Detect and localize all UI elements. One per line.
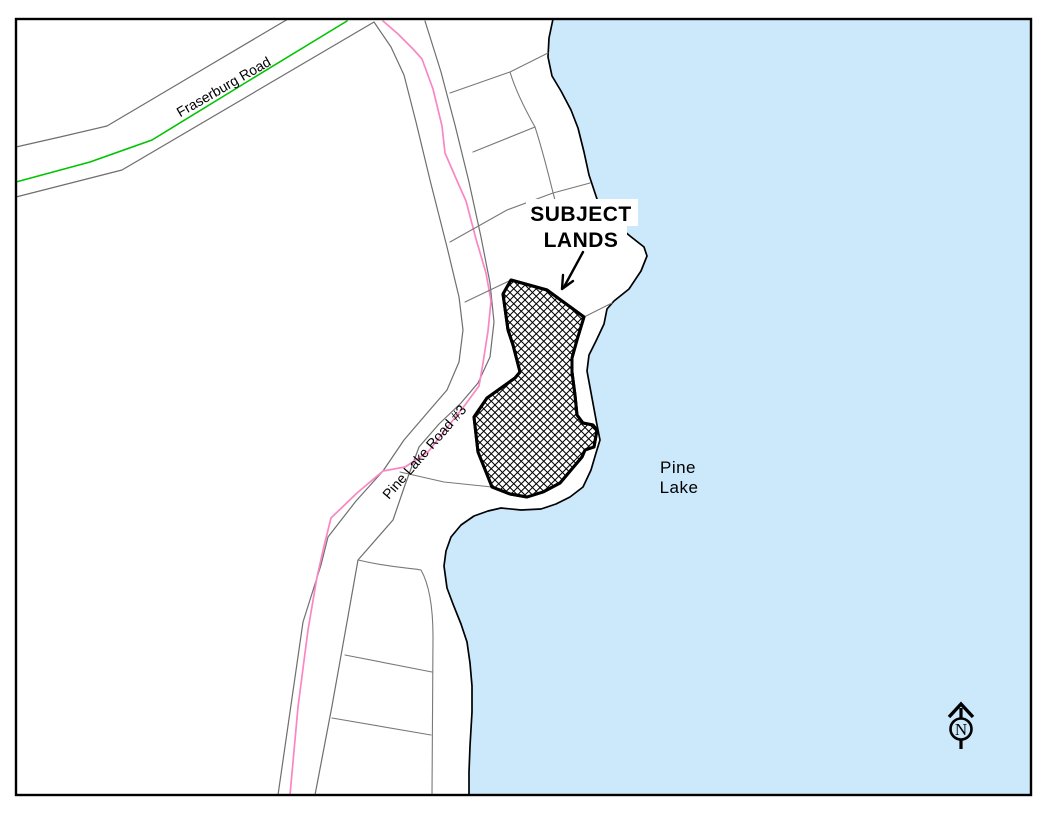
subject-lands-label-line1: SUBJECT xyxy=(530,203,632,226)
subject-lands-label-line2: LANDS xyxy=(544,229,619,252)
pine-lake-label-line1: Pine xyxy=(660,458,696,477)
north-arrow-letter: N xyxy=(955,720,967,739)
map-figure: Fraserburg Road Pine Lake Road #3 SUBJEC… xyxy=(0,0,1056,816)
location-map: Fraserburg Road Pine Lake Road #3 SUBJEC… xyxy=(0,0,1056,816)
pine-lake-label-line2: Lake xyxy=(660,478,699,497)
